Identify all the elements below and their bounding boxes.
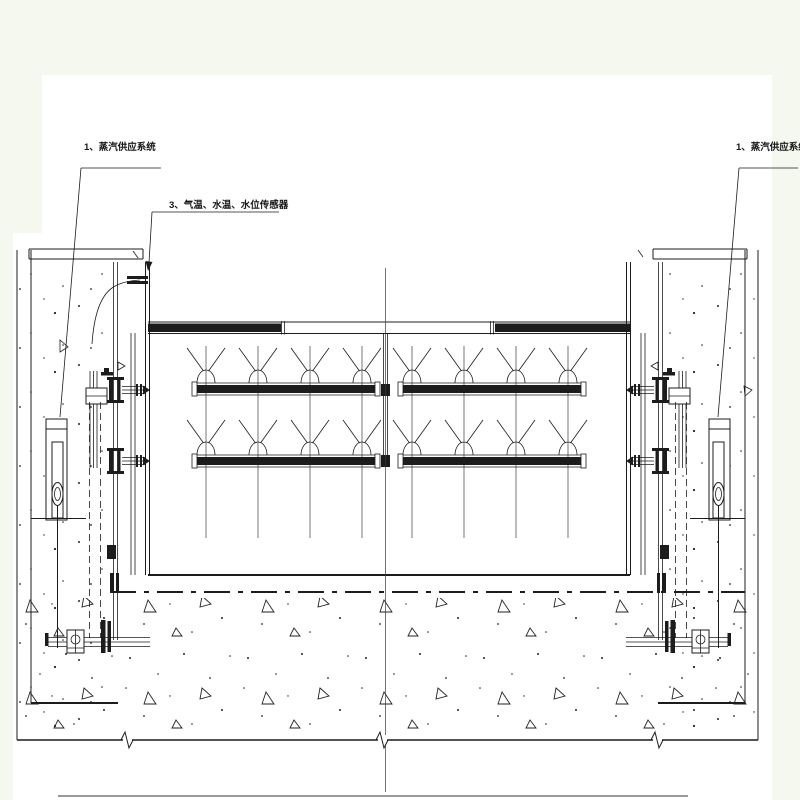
label-sensors: 3、气温、水温、水位传感器 xyxy=(169,199,289,211)
label-steam-supply-right: 1、蒸汽供应系统 xyxy=(736,141,800,153)
engineering-drawing: 1、蒸汽供应系统 3、气温、水温、水位传感器 1、蒸汽供应系统 xyxy=(0,0,800,800)
label-steam-supply-left: 1、蒸汽供应系统 xyxy=(84,141,156,153)
drawing-canvas: 1、蒸汽供应系统 3、气温、水温、水位传感器 1、蒸汽供应系统 xyxy=(0,0,800,800)
